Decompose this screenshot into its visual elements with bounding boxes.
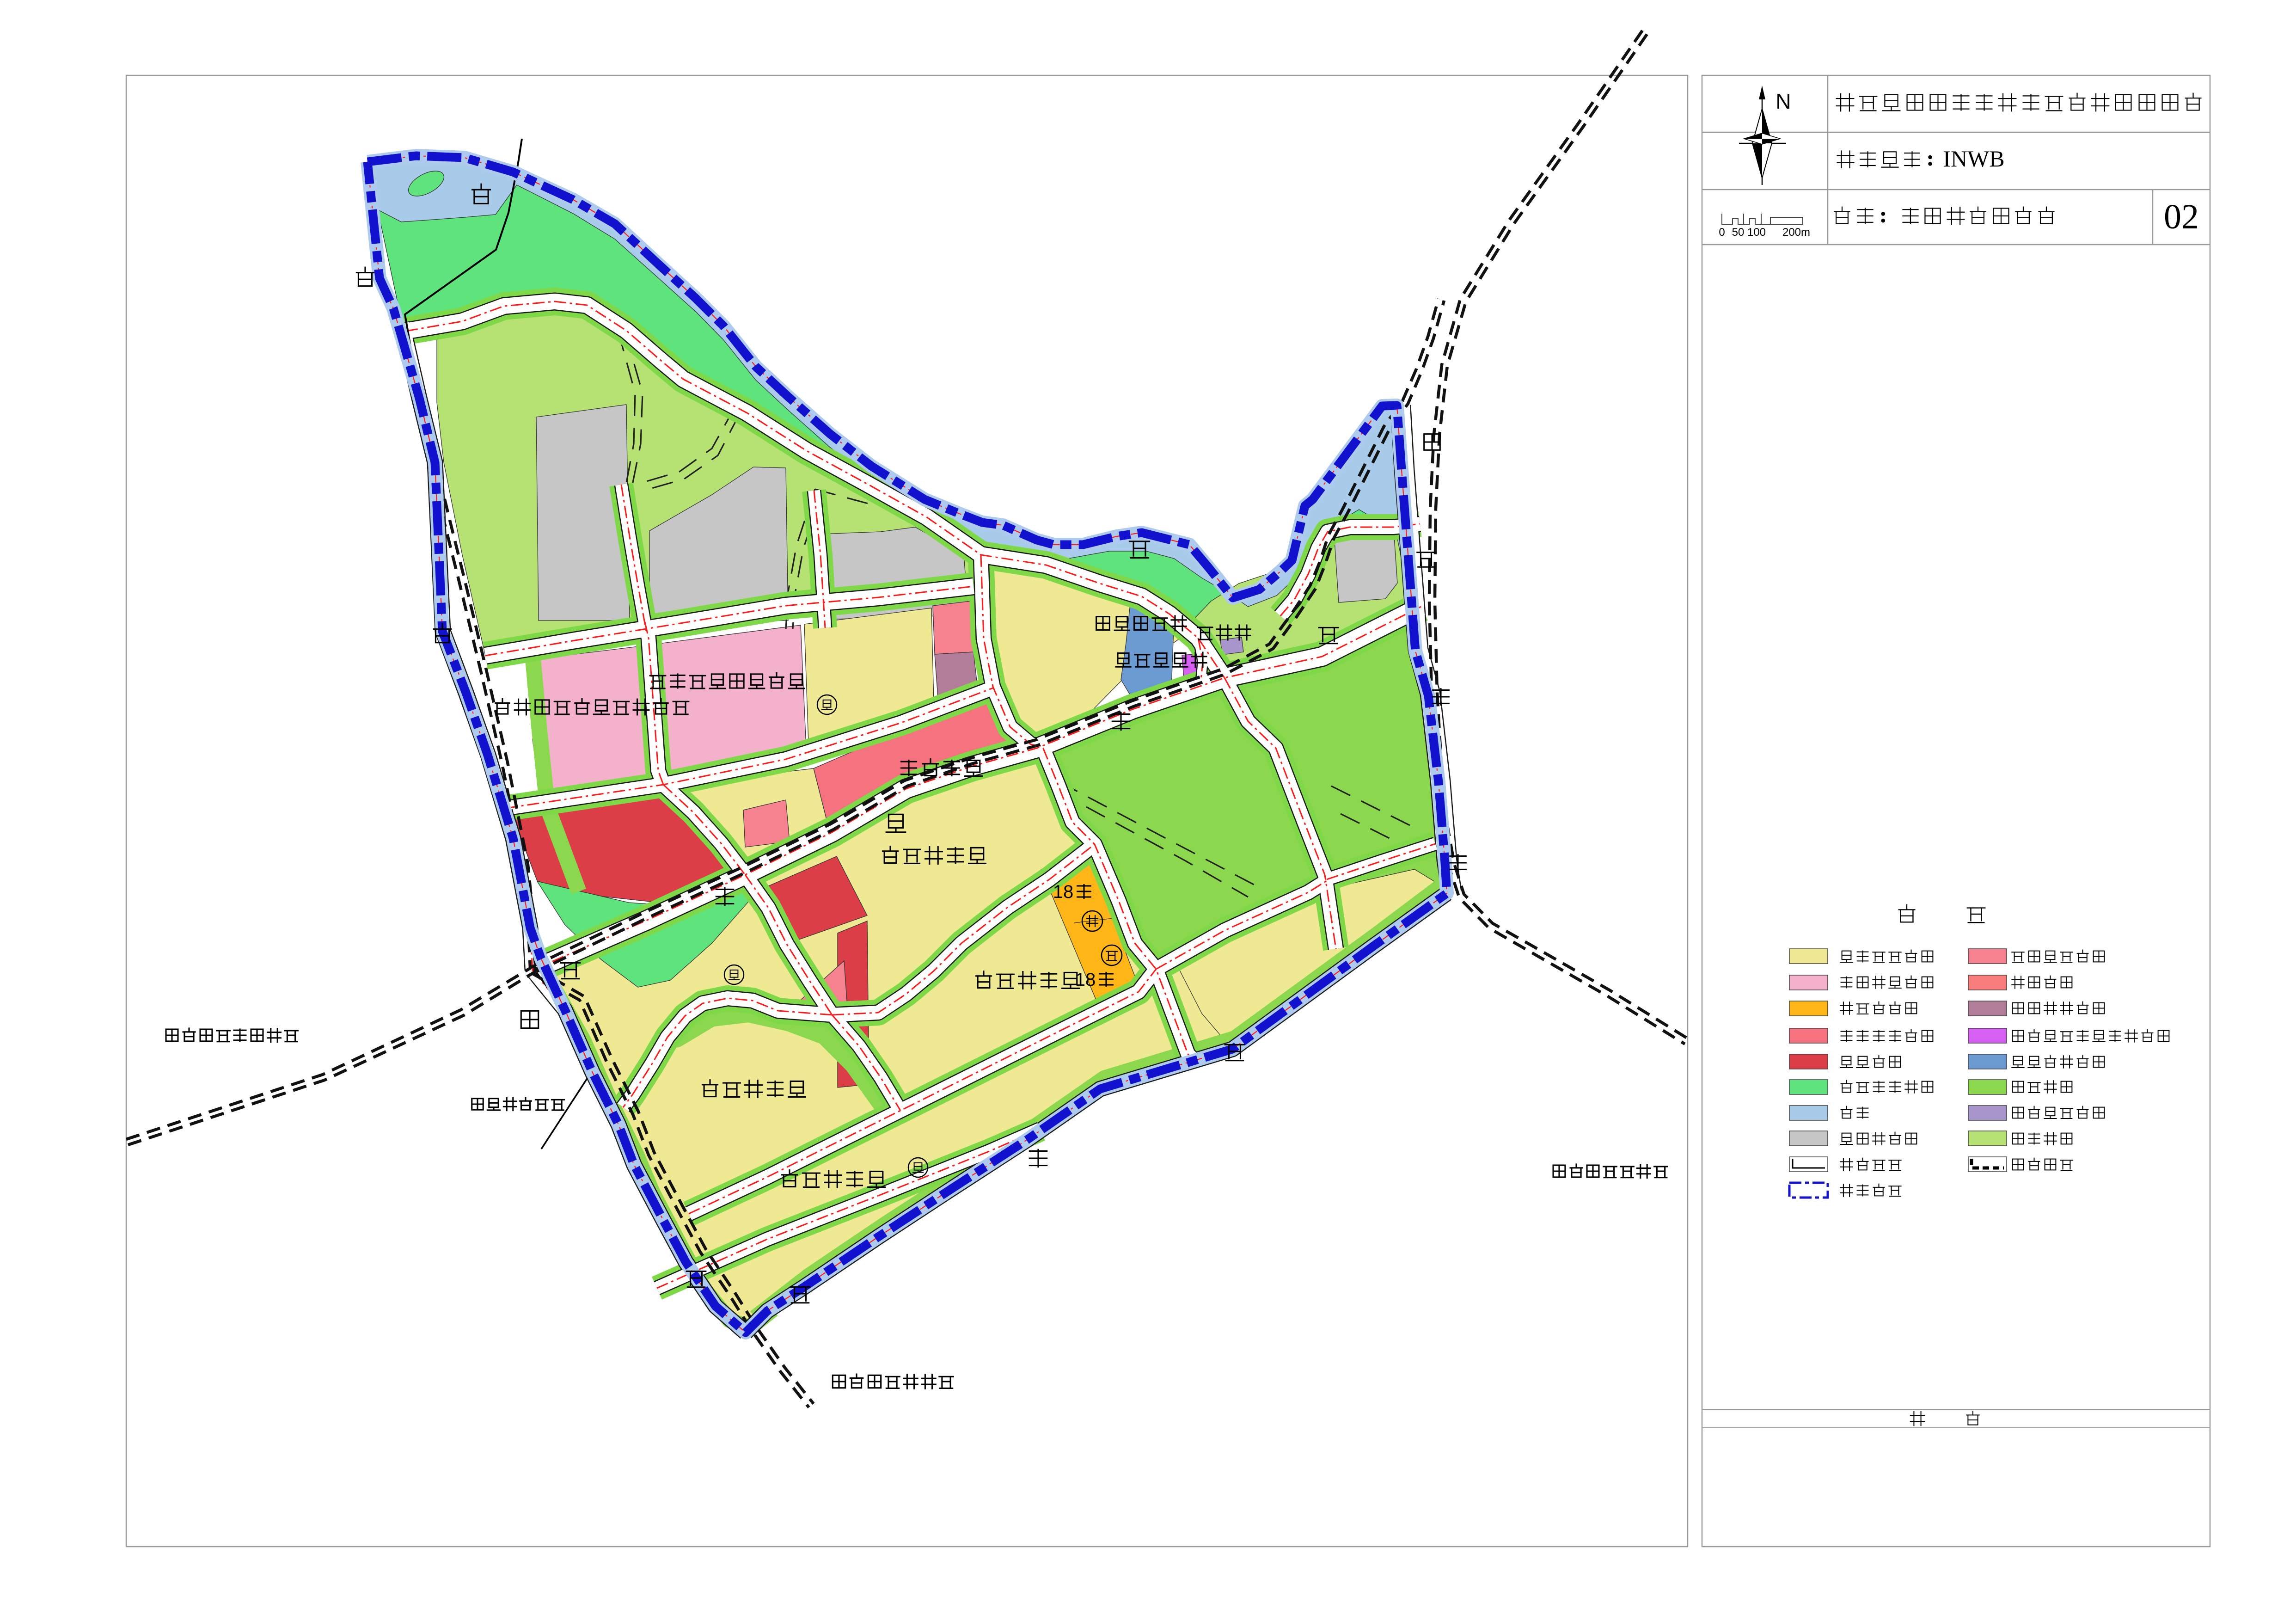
svg-text:50: 50 bbox=[1732, 226, 1745, 239]
svg-text:100: 100 bbox=[1747, 226, 1766, 239]
svg-text:INWB: INWB bbox=[1943, 146, 2004, 172]
svg-text:200m: 200m bbox=[1782, 226, 1810, 239]
svg-text:18: 18 bbox=[1075, 970, 1096, 990]
svg-text:02: 02 bbox=[2164, 197, 2199, 236]
svg-text:18: 18 bbox=[1053, 882, 1074, 902]
svg-text:N: N bbox=[1776, 89, 1791, 113]
svg-text:0: 0 bbox=[1719, 226, 1725, 239]
